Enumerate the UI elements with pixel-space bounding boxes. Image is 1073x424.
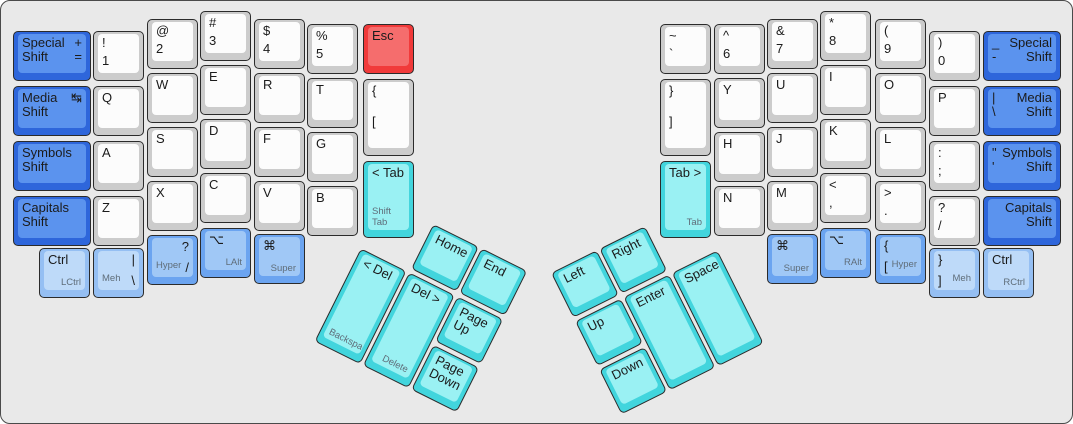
key-k-legend-tl: K (829, 124, 838, 138)
key-4-legend-tl: $ (263, 24, 270, 38)
key-i[interactable]: I (820, 65, 871, 115)
key-1[interactable]: !1 (93, 31, 144, 81)
key-hyper-left-legend-br: / (185, 261, 189, 275)
key-n[interactable]: N (714, 186, 765, 236)
key-semicolon[interactable]: :; (929, 141, 980, 191)
key-super-right-legend-subr: Super (784, 264, 809, 274)
key-c-cap: C (205, 176, 246, 215)
capitals-shift-left[interactable]: Capitals Shift (13, 196, 91, 246)
key-z-legend-tl: Z (102, 201, 110, 215)
key-9-cap: (9 (880, 22, 921, 61)
key-super-left-legend-subr: Super (271, 264, 296, 274)
key-o[interactable]: O (875, 73, 926, 123)
key-3-cap: #3 (205, 14, 246, 53)
key-v[interactable]: V (254, 181, 305, 231)
key-f-cap: F (259, 130, 300, 169)
key-lalt-cap: ⌥LAlt (205, 231, 246, 270)
key-5-legend-ml: 5 (316, 47, 323, 61)
key-tab-right-cap: Tab >Tab (665, 164, 706, 230)
key-meh-right[interactable]: }]Meh (929, 248, 980, 298)
symbols-shift-right[interactable]: " 'Symbols Shift (983, 141, 1061, 191)
key-arrow-up-cap: Up (581, 303, 635, 356)
key-meh-left[interactable]: |Meh\ (93, 248, 144, 298)
key-4-legend-ml: 4 (263, 42, 270, 56)
key-b-cap: B (312, 189, 353, 228)
media-shift-right[interactable]: | \Media Shift (983, 86, 1061, 136)
key-page-down-cap: Page Down (419, 350, 473, 403)
key-v-cap: V (259, 184, 300, 223)
media-shift-left-legend-tl: Media Shift (22, 91, 57, 119)
capitals-shift-right[interactable]: Capitals Shift (983, 196, 1061, 246)
key-tab-left[interactable]: < TabShift Tab (363, 161, 414, 238)
key-ralt-legend-subr: RAlt (844, 258, 862, 268)
key-comma[interactable]: <, (820, 173, 871, 223)
key-esc-cap: Esc (368, 27, 409, 66)
key-s[interactable]: S (147, 127, 198, 177)
key-hyper-right-cap: {[Hyper (880, 237, 921, 276)
key-6[interactable]: ^6 (714, 24, 765, 74)
key-slash[interactable]: ?/ (929, 196, 980, 246)
key-y-cap: Y (719, 81, 760, 120)
key-k-cap: K (825, 122, 866, 161)
key-grave[interactable]: ~` (660, 24, 711, 74)
key-o-cap: O (880, 76, 921, 115)
tab-arrows-icon: ↹ (71, 91, 82, 105)
special-shift-right-cap: _ -Special Shift (988, 34, 1056, 73)
key-home-cap: Home (419, 229, 473, 282)
key-l[interactable]: L (875, 127, 926, 177)
key-period-cap: >. (880, 184, 921, 223)
key-a-legend-tl: A (102, 146, 111, 160)
key-l-legend-tl: L (884, 132, 891, 146)
key-7[interactable]: &7 (767, 19, 818, 69)
key-slash-legend-tl: ? (938, 201, 945, 215)
key-tab-left-legend-tl: < Tab (372, 166, 404, 180)
key-x-cap: X (152, 184, 193, 223)
key-r-legend-tl: R (263, 78, 272, 92)
key-a[interactable]: A (93, 141, 144, 191)
key-7-legend-ml: 7 (776, 42, 783, 56)
key-t-cap: T (312, 81, 353, 120)
key-6-legend-ml: 6 (723, 47, 730, 61)
key-3[interactable]: #3 (200, 11, 251, 61)
key-d-cap: D (205, 122, 246, 161)
key-lalt[interactable]: ⌥LAlt (200, 228, 251, 278)
key-2-cap: @2 (152, 22, 193, 61)
key-tab-left-cap: < TabShift Tab (368, 164, 409, 230)
key-rctrl[interactable]: CtrlRCtrl (983, 248, 1034, 298)
key-t[interactable]: T (307, 78, 358, 128)
key-7-legend-tl: & (776, 24, 785, 38)
key-meh-right-cap: }]Meh (934, 251, 975, 290)
key-h[interactable]: H (714, 132, 765, 182)
key-x-legend-tl: X (156, 186, 165, 200)
key-0-legend-tl: ) (938, 36, 942, 50)
symbols-shift-left[interactable]: Symbols Shift (13, 141, 91, 191)
key-lctrl-cap: CtrlLCtrl (44, 251, 85, 290)
command-icon: ⌘ (776, 239, 789, 253)
key-lbrace-left[interactable]: {[ (363, 79, 414, 156)
key-lalt-legend-subr: LAlt (226, 258, 242, 268)
key-0[interactable]: )0 (929, 31, 980, 81)
key-r-cap: R (259, 76, 300, 115)
key-i-legend-tl: I (829, 70, 833, 84)
key-8-legend-tl: * (829, 16, 834, 30)
key-d-legend-tl: D (209, 124, 218, 138)
key-g[interactable]: G (307, 132, 358, 182)
key-p-legend-tl: P (938, 91, 947, 105)
key-5[interactable]: %5 (307, 24, 358, 74)
key-9-legend-ml: 9 (884, 42, 891, 56)
key-grave-legend-ml: ` (669, 47, 673, 61)
special-shift-left-cap: Special Shift+ = (18, 34, 86, 73)
key-comma-legend-tl: < (829, 178, 837, 192)
key-meh-left-legend-subl: Meh (102, 274, 120, 284)
key-rctrl-legend-tl: Ctrl (992, 253, 1012, 267)
key-period[interactable]: >. (875, 181, 926, 231)
key-tab-right[interactable]: Tab >Tab (660, 161, 711, 238)
key-f[interactable]: F (254, 127, 305, 177)
key-lctrl-legend-subr: LCtrl (61, 278, 81, 288)
key-lbrace-left-legend-ml: [ (372, 115, 376, 129)
key-4-cap: $4 (259, 22, 300, 61)
key-rbrace-right-cap: }] (665, 82, 706, 148)
key-c-legend-tl: C (209, 178, 218, 192)
capitals-shift-left-legend-tl: Capitals Shift (22, 201, 69, 229)
key-lctrl-legend-tl: Ctrl (48, 253, 68, 267)
key-page-up-cap: Page Up (443, 301, 497, 354)
key-tab-left-legend-subr: Shift Tab (372, 207, 405, 228)
key-k[interactable]: K (820, 119, 871, 169)
key-g-cap: G (312, 135, 353, 174)
key-5-cap: %5 (312, 27, 353, 66)
key-q-cap: Q (98, 89, 139, 128)
key-s-legend-tl: S (156, 132, 165, 146)
key-semicolon-cap: :; (934, 144, 975, 183)
key-meh-left-legend-br: \ (131, 274, 135, 288)
key-comma-cap: <, (825, 176, 866, 215)
key-slash-cap: ?/ (934, 199, 975, 238)
key-esc-legend-tl: Esc (372, 29, 394, 43)
key-d[interactable]: D (200, 119, 251, 169)
key-arrow-right-cap: Right (605, 231, 659, 284)
key-3-legend-ml: 3 (209, 34, 216, 48)
key-ralt-cap: ⌥RAlt (825, 231, 866, 270)
key-b-legend-tl: B (316, 191, 325, 205)
key-1-cap: !1 (98, 34, 139, 73)
key-9-legend-tl: ( (884, 24, 888, 38)
key-5-legend-tl: % (316, 29, 328, 43)
key-lbrace-left-legend-tl: { (372, 84, 376, 98)
key-super-right[interactable]: ⌘Super (767, 234, 818, 284)
key-w-legend-tl: W (156, 78, 168, 92)
key-meh-left-legend-tr: | (132, 253, 135, 267)
key-j-legend-tl: J (776, 132, 783, 146)
key-arrow-down-cap: Down (605, 352, 659, 405)
key-hyper-right-legend-subr: Hyper (892, 260, 917, 270)
key-n-cap: N (719, 189, 760, 228)
special-shift-left[interactable]: Special Shift+ = (13, 31, 91, 81)
symbols-shift-left-cap: Symbols Shift (18, 144, 86, 183)
key-a-cap: A (98, 144, 139, 183)
key-p[interactable]: P (929, 86, 980, 136)
key-rctrl-legend-subr: RCtrl (1003, 278, 1025, 288)
key-h-cap: H (719, 135, 760, 174)
key-meh-right-legend-tl: } (938, 253, 942, 267)
key-p-cap: P (934, 89, 975, 128)
key-super-right-cap: ⌘Super (772, 237, 813, 276)
key-tab-right-legend-tl: Tab > (669, 166, 701, 180)
key-meh-right-legend-subr: Meh (953, 274, 971, 284)
key-super-left[interactable]: ⌘Super (254, 234, 305, 284)
key-w-cap: W (152, 76, 193, 115)
command-icon: ⌘ (263, 239, 276, 253)
key-0-cap: )0 (934, 34, 975, 73)
key-z[interactable]: Z (93, 196, 144, 246)
key-4[interactable]: $4 (254, 19, 305, 69)
key-comma-legend-ml: , (829, 196, 833, 210)
key-1-legend-ml: 1 (102, 54, 109, 68)
key-lbrace-left-cap: {[ (368, 82, 409, 148)
key-6-legend-tl: ^ (723, 29, 729, 43)
key-u-legend-tl: U (776, 78, 785, 92)
key-hyper-left-legend-subl: Hyper (156, 261, 181, 271)
keyboard-case: HomeEnd< DelBackspaceDel >DeletePage UpP… (0, 0, 1073, 424)
key-meh-left-cap: |Meh\ (98, 251, 139, 290)
key-v-legend-tl: V (263, 186, 272, 200)
key-rbrace-right-legend-tl: } (669, 84, 673, 98)
media-shift-left-cap: Media Shift↹ (18, 89, 86, 128)
capitals-shift-left-cap: Capitals Shift (18, 199, 86, 238)
key-esc[interactable]: Esc (363, 24, 414, 74)
key-arrow-left-cap: Left (557, 255, 611, 308)
special-shift-right-legend-tr: Special Shift (1009, 36, 1052, 64)
key-i-cap: I (825, 68, 866, 107)
capitals-shift-right-cap: Capitals Shift (988, 199, 1056, 238)
key-rbrace-right[interactable]: }] (660, 79, 711, 156)
key-y-legend-tl: Y (723, 83, 732, 97)
key-hyper-right[interactable]: {[Hyper (875, 234, 926, 284)
key-o-legend-tl: O (884, 78, 894, 92)
key-m-cap: M (772, 184, 813, 223)
key-r[interactable]: R (254, 73, 305, 123)
media-shift-right-cap: | \Media Shift (988, 89, 1056, 128)
special-shift-left-legend-tl: Special Shift (22, 36, 65, 64)
key-hyper-right-legend-bl: [ (884, 260, 888, 274)
key-semicolon-legend-tl: : (938, 146, 942, 160)
key-m[interactable]: M (767, 181, 818, 231)
key-f-legend-tl: F (263, 132, 271, 146)
key-m-legend-tl: M (776, 186, 787, 200)
key-grave-legend-tl: ~ (669, 29, 677, 43)
key-1-legend-tl: ! (102, 36, 106, 50)
key-e-legend-tl: E (209, 70, 218, 84)
key-period-legend-ml: . (884, 204, 888, 218)
key-j-cap: J (772, 130, 813, 169)
key-rctrl-cap: CtrlRCtrl (988, 251, 1029, 290)
key-7-cap: &7 (772, 22, 813, 61)
key-8-cap: *8 (825, 14, 866, 53)
key-period-legend-tl: > (884, 186, 892, 200)
special-shift-right[interactable]: _ -Special Shift (983, 31, 1061, 81)
key-g-legend-tl: G (316, 137, 326, 151)
key-2-legend-tl: @ (156, 24, 169, 38)
key-b[interactable]: B (307, 186, 358, 236)
key-e[interactable]: E (200, 65, 251, 115)
option-icon: ⌥ (209, 233, 224, 247)
key-tab-right-legend-subr: Tab (687, 218, 702, 228)
symbols-shift-left-legend-tl: Symbols Shift (22, 146, 72, 174)
key-meh-right-legend-bl: ] (938, 274, 942, 288)
key-8-legend-ml: 8 (829, 34, 836, 48)
key-3-legend-tl: # (209, 16, 216, 30)
key-2-legend-ml: 2 (156, 42, 163, 56)
key-6-cap: ^6 (719, 27, 760, 66)
key-semicolon-legend-ml: ; (938, 164, 942, 178)
media-shift-left[interactable]: Media Shift↹ (13, 86, 91, 136)
symbols-shift-right-cap: " 'Symbols Shift (988, 144, 1056, 183)
option-icon: ⌥ (829, 233, 844, 247)
capitals-shift-right-legend-tr: Capitals Shift (1005, 201, 1052, 229)
key-n-legend-tl: N (723, 191, 732, 205)
key-hyper-left-cap: ?Hyper/ (152, 238, 193, 277)
key-grave-cap: ~` (665, 27, 706, 66)
key-s-cap: S (152, 130, 193, 169)
key-z-cap: Z (98, 199, 139, 238)
key-super-left-cap: ⌘Super (259, 237, 300, 276)
key-t-legend-tl: T (316, 83, 324, 97)
key-lctrl[interactable]: CtrlLCtrl (39, 248, 90, 298)
key-slash-legend-ml: / (938, 219, 942, 233)
key-x[interactable]: X (147, 181, 198, 231)
key-9[interactable]: (9 (875, 19, 926, 69)
key-j[interactable]: J (767, 127, 818, 177)
media-shift-right-legend-tl: | \ (992, 91, 996, 119)
key-u[interactable]: U (767, 73, 818, 123)
key-ralt[interactable]: ⌥RAlt (820, 228, 871, 278)
key-end-cap: End (467, 253, 521, 306)
symbols-shift-right-legend-tl: " ' (992, 146, 997, 174)
key-hyper-left[interactable]: ?Hyper/ (147, 235, 198, 285)
key-y[interactable]: Y (714, 78, 765, 128)
special-shift-left-legend-tr: + = (74, 36, 82, 64)
key-2[interactable]: @2 (147, 19, 198, 69)
symbols-shift-right-legend-tr: Symbols Shift (1002, 146, 1052, 174)
key-q-legend-tl: Q (102, 91, 112, 105)
key-hyper-right-legend-tl: { (884, 239, 888, 253)
key-rbrace-right-legend-ml: ] (669, 115, 673, 129)
special-shift-right-legend-tl: _ - (992, 36, 999, 64)
key-e-cap: E (205, 68, 246, 107)
media-shift-right-legend-tr: Media Shift (1017, 91, 1052, 119)
key-hyper-left-legend-tr: ? (182, 240, 189, 254)
key-u-cap: U (772, 76, 813, 115)
key-0-legend-ml: 0 (938, 54, 945, 68)
key-h-legend-tl: H (723, 137, 732, 151)
key-8[interactable]: *8 (820, 11, 871, 61)
key-l-cap: L (880, 130, 921, 169)
key-w[interactable]: W (147, 73, 198, 123)
key-c[interactable]: C (200, 173, 251, 223)
key-q[interactable]: Q (93, 86, 144, 136)
